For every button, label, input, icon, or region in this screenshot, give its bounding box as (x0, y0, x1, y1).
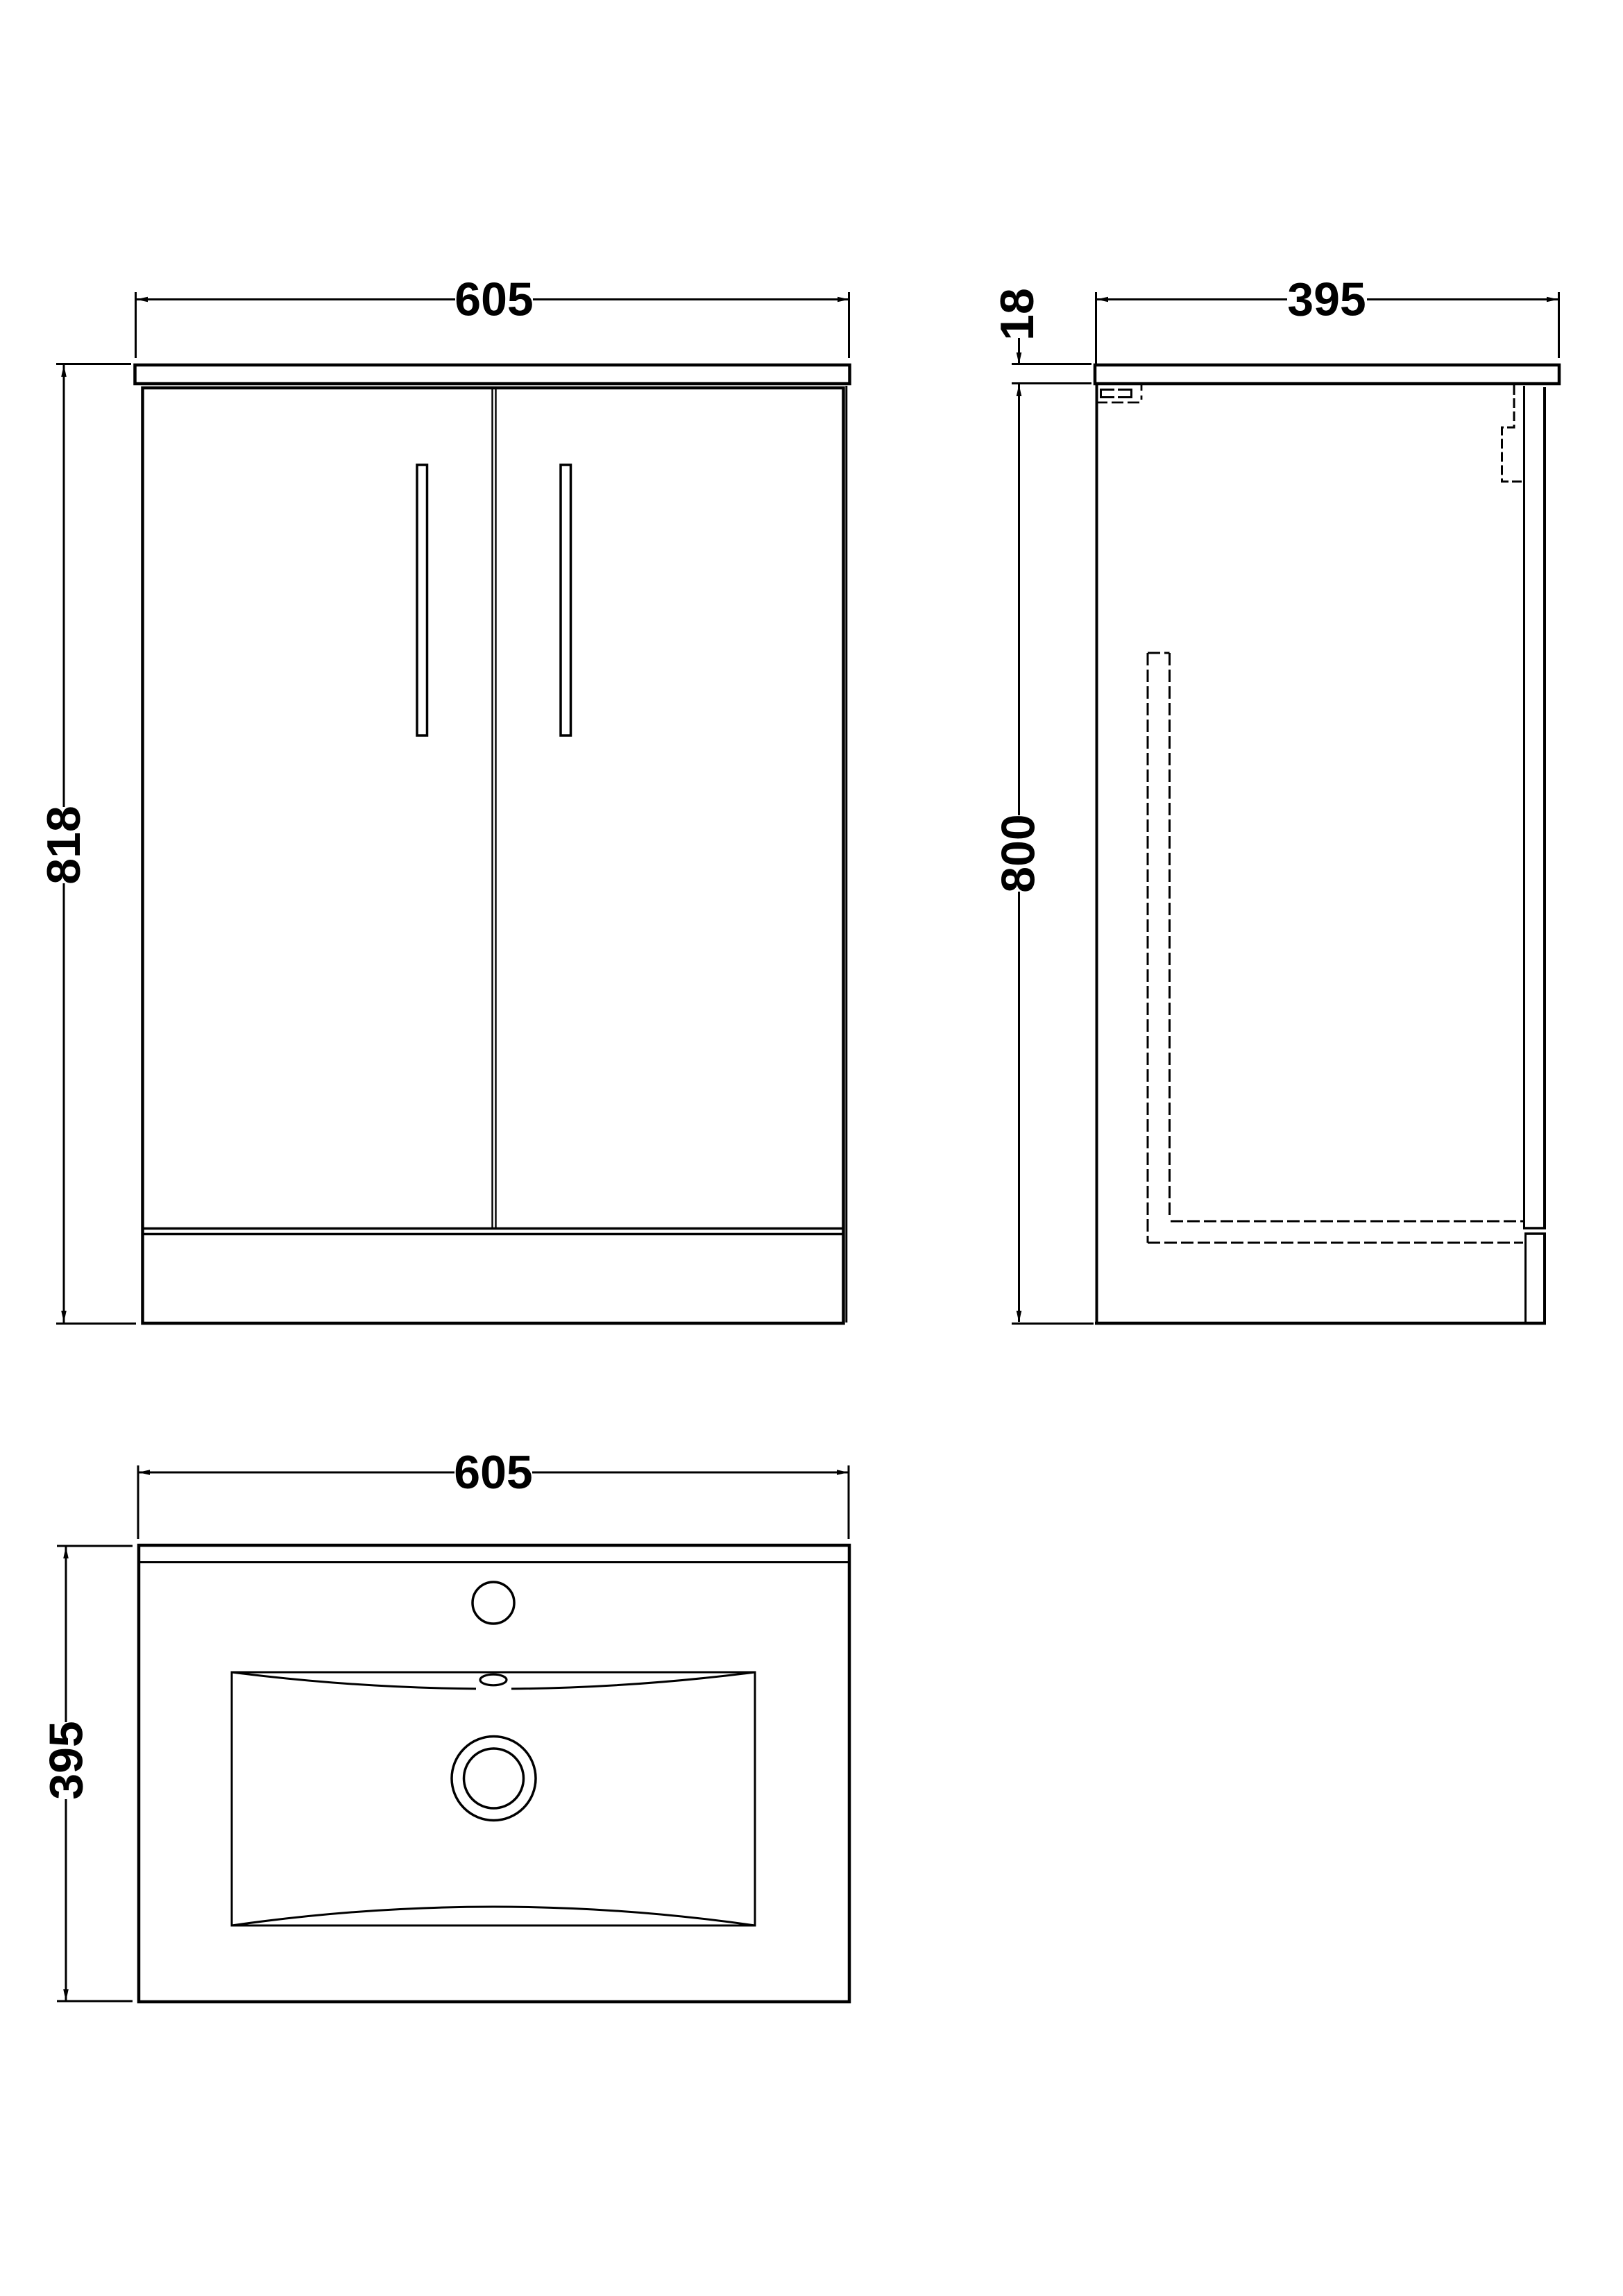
svg-text:395: 395 (40, 1721, 93, 1799)
svg-text:18: 18 (991, 288, 1044, 341)
svg-text:800: 800 (992, 814, 1045, 892)
svg-text:818: 818 (37, 806, 90, 884)
svg-text:605: 605 (454, 273, 533, 326)
svg-text:395: 395 (1287, 273, 1366, 326)
svg-text:605: 605 (454, 1446, 532, 1499)
